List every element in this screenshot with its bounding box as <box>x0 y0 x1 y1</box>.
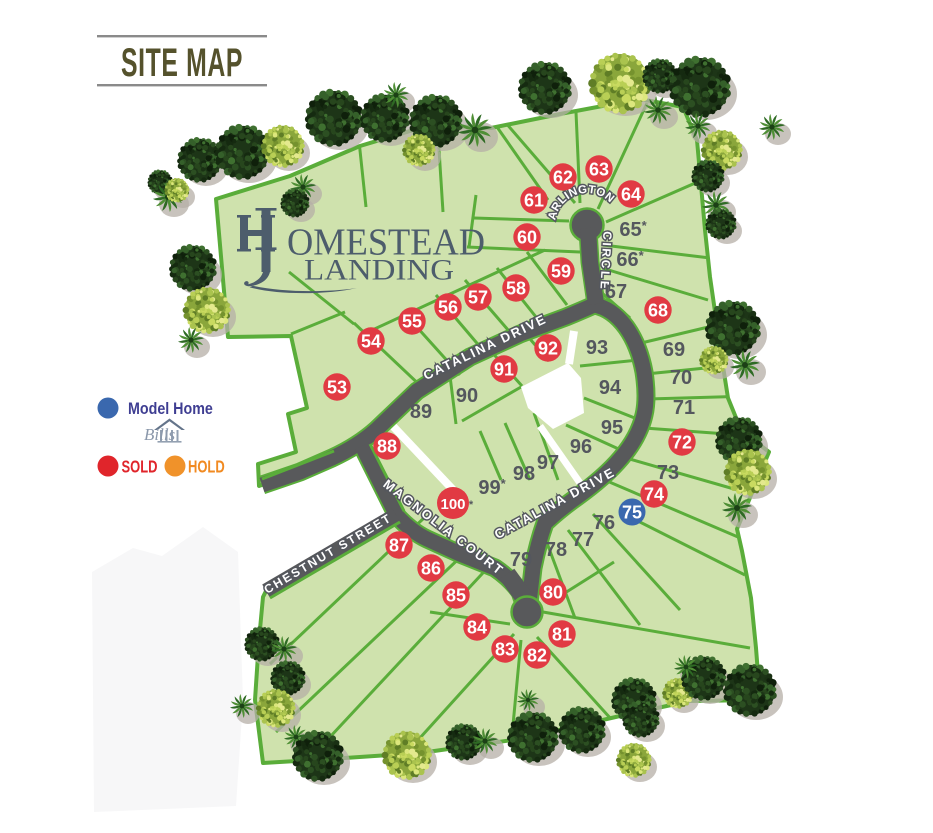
svg-text:98: 98 <box>513 463 535 485</box>
svg-text:64: 64 <box>621 185 641 205</box>
svg-text:88: 88 <box>377 437 397 457</box>
svg-text:94: 94 <box>599 377 622 399</box>
svg-text:55: 55 <box>402 312 422 332</box>
svg-text:*: * <box>469 499 474 511</box>
svg-text:68: 68 <box>648 301 668 321</box>
svg-text:70: 70 <box>670 367 692 389</box>
svg-text:87: 87 <box>389 536 409 556</box>
svg-text:100: 100 <box>440 496 465 513</box>
svg-text:71: 71 <box>673 397 695 419</box>
svg-text:75: 75 <box>622 503 642 523</box>
svg-text:77: 77 <box>572 529 594 551</box>
svg-text:53: 53 <box>327 378 347 398</box>
svg-text:82: 82 <box>527 646 547 666</box>
svg-text:92: 92 <box>538 339 558 359</box>
svg-text:67: 67 <box>605 281 627 303</box>
svg-text:96: 96 <box>570 436 592 458</box>
svg-text:89: 89 <box>410 401 432 423</box>
svg-text:LANDING: LANDING <box>304 254 454 287</box>
svg-text:90: 90 <box>456 385 478 407</box>
svg-text:60: 60 <box>517 228 537 248</box>
svg-text:59: 59 <box>551 262 571 282</box>
svg-text:56: 56 <box>438 298 458 318</box>
svg-text:97: 97 <box>537 452 559 474</box>
svg-text:HOLD: HOLD <box>188 458 225 478</box>
svg-text:57: 57 <box>468 288 488 308</box>
svg-text:79: 79 <box>510 549 532 571</box>
svg-text:74: 74 <box>644 485 664 505</box>
svg-text:84: 84 <box>467 618 487 638</box>
svg-text:63: 63 <box>589 160 609 180</box>
svg-text:93: 93 <box>586 337 608 359</box>
svg-text:SITE MAP: SITE MAP <box>121 41 243 85</box>
svg-text:76: 76 <box>593 512 615 534</box>
svg-text:62: 62 <box>553 168 573 188</box>
svg-text:95: 95 <box>601 417 623 439</box>
svg-text:Bills: Bills <box>144 425 176 444</box>
svg-text:85: 85 <box>446 586 466 606</box>
svg-text:80: 80 <box>543 583 563 603</box>
svg-text:86: 86 <box>421 559 441 579</box>
svg-text:81: 81 <box>552 625 572 645</box>
svg-text:SOLD: SOLD <box>122 458 158 478</box>
svg-text:78: 78 <box>545 539 567 561</box>
svg-text:83: 83 <box>495 640 515 660</box>
svg-text:Model Home: Model Home <box>128 400 213 418</box>
svg-text:73: 73 <box>657 462 679 484</box>
svg-text:61: 61 <box>524 191 544 211</box>
svg-text:72: 72 <box>672 433 692 453</box>
svg-text:91: 91 <box>494 360 514 380</box>
svg-text:69: 69 <box>663 339 685 361</box>
svg-text:54: 54 <box>361 332 381 352</box>
svg-text:58: 58 <box>506 279 526 299</box>
